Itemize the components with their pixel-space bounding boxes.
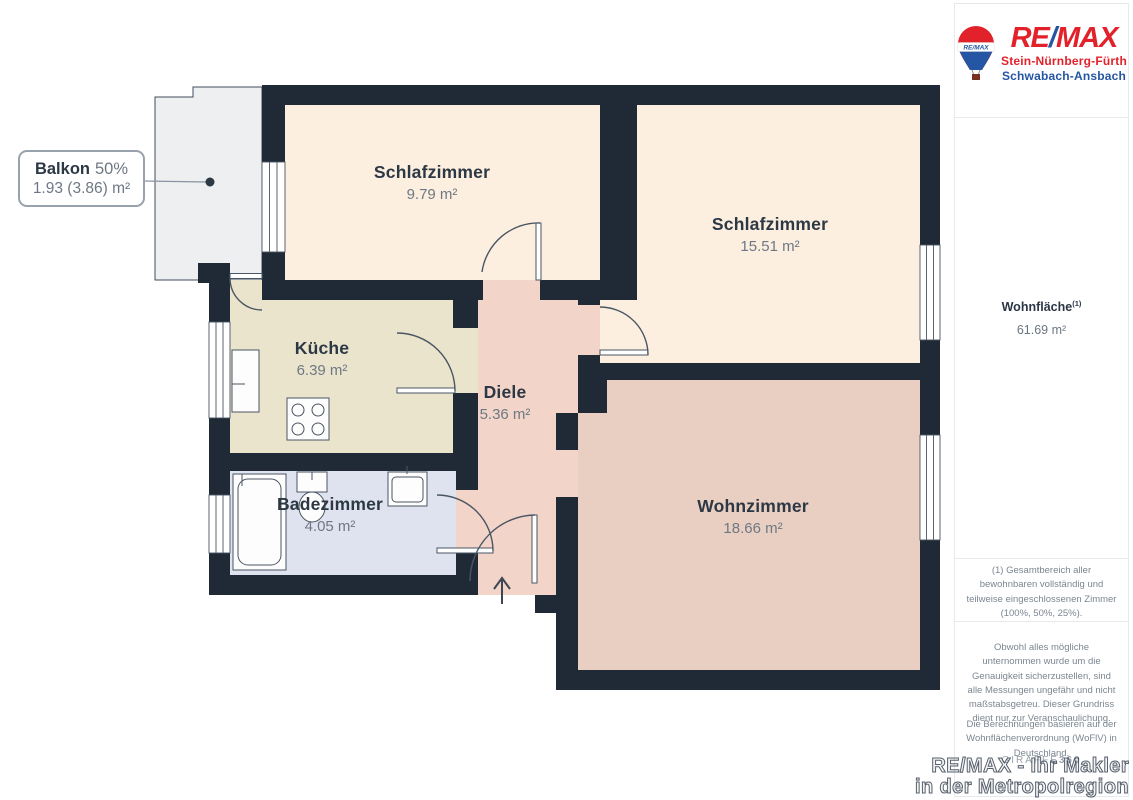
living-area-total: Wohnfläche(1) 61.69 m² <box>955 299 1128 337</box>
floorplan-page: Balkon50% 1.93 (3.86) m² Schlafzimmer 9.… <box>0 0 1133 800</box>
room-area: 9.79 m² <box>374 186 490 203</box>
wordmark-max: MAX <box>1056 22 1117 54</box>
office-region-line2: Schwabach-Ansbach <box>1002 70 1126 83</box>
bedroom2-window <box>920 245 940 340</box>
room-area: 15.51 m² <box>712 238 828 255</box>
kitchen-window <box>209 322 230 418</box>
room-label-diele: Diele 5.36 m² <box>480 382 531 423</box>
room-name: Schlafzimmer <box>374 162 490 183</box>
footnote-text: (1) Gesamtbereich aller bewohnbaren voll… <box>964 564 1119 621</box>
balcony-name: Balkon <box>35 160 90 178</box>
room-label-badezimmer: Badezimmer 4.05 m² <box>277 494 383 535</box>
remax-watermark: RE/MAX - Ihr Makler in der Metropolregio… <box>915 756 1129 798</box>
info-sidebar: RE/MAX RE/MAX Stein-Nürnberg-Fürth Schwa… <box>954 3 1129 797</box>
room-name: Wohnzimmer <box>697 496 809 517</box>
sink-icon <box>388 466 427 506</box>
room-name: Küche <box>295 338 349 359</box>
room-name: Badezimmer <box>277 494 383 515</box>
room-area: 4.05 m² <box>277 518 383 535</box>
remax-logo: RE/MAX RE/MAX Stein-Nürnberg-Fürth Schwa… <box>955 24 1128 84</box>
divider <box>955 621 1128 622</box>
floorplan-drawing <box>0 0 955 800</box>
footnote-reference: (1) <box>1072 299 1081 308</box>
divider <box>955 558 1128 559</box>
balcony-share: 50% <box>95 160 128 178</box>
balcony-callout: Balkon50% 1.93 (3.86) m² <box>18 150 145 207</box>
living-area-label: Wohnfläche <box>1002 300 1073 314</box>
room-area: 5.36 m² <box>480 406 531 423</box>
balcony-marker-dot <box>206 178 215 187</box>
room-area: 6.39 m² <box>295 362 349 379</box>
disclaimer-accuracy: Obwohl alles mögliche unternommen wurde … <box>964 641 1119 727</box>
room-area: 18.66 m² <box>697 520 809 537</box>
room-name: Schlafzimmer <box>712 214 828 235</box>
room-label-schlafzimmer-2: Schlafzimmer 15.51 m² <box>712 214 828 255</box>
wordmark-re: RE <box>1011 22 1049 54</box>
wordmark-slash: / <box>1049 22 1056 54</box>
room-label-wohnzimmer: Wohnzimmer 18.66 m² <box>697 496 809 537</box>
room-name: Diele <box>480 382 531 403</box>
bathroom-window <box>209 495 230 553</box>
remax-wordmark: RE/MAX Stein-Nürnberg-Fürth Schwabach-An… <box>1001 24 1127 84</box>
office-region-line1: Stein-Nürnberg-Fürth <box>1001 55 1127 68</box>
balloon-band-text: RE/MAX <box>963 45 989 52</box>
remax-balloon-icon: RE/MAX <box>956 24 996 82</box>
watermark-line1: RE/MAX - Ihr Makler <box>915 756 1129 777</box>
room-label-schlafzimmer-1: Schlafzimmer 9.79 m² <box>374 162 490 203</box>
stove-icon <box>287 398 329 440</box>
living-area-value: 61.69 m² <box>955 323 1128 337</box>
balcony-window <box>262 162 285 252</box>
livingroom-window <box>920 435 940 540</box>
watermark-line2: in der Metropolregion <box>915 777 1129 798</box>
fridge-icon <box>232 350 259 412</box>
balcony-area-value: 1.93 (3.86) m² <box>33 179 130 198</box>
divider <box>955 117 1128 118</box>
room-label-kueche: Küche 6.39 m² <box>295 338 349 379</box>
